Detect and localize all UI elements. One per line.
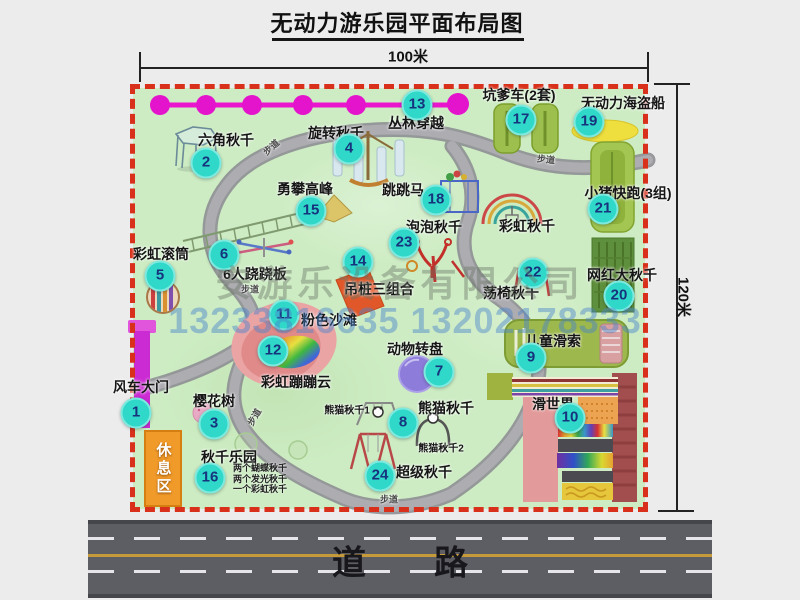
annotation-label-2: 熊猫秋千2: [418, 440, 464, 455]
watermark-phones: 13233816635 13202178333: [168, 300, 641, 342]
path-label-0: 步道: [260, 136, 282, 158]
marker-badge-24: 24: [365, 461, 396, 492]
marker-badge-19: 19: [574, 107, 605, 138]
swing-park-note-line: 两个发光秋千: [233, 474, 287, 485]
marker-label-24: 超级秋千: [396, 462, 452, 482]
marker-badge-18: 18: [421, 185, 452, 216]
marker-label-18: 跳跳马: [382, 180, 424, 200]
swing-park-note-line: 一个彩虹秋千: [233, 484, 287, 495]
path-label-4: 步道: [380, 493, 398, 506]
marker-badge-15: 15: [296, 196, 327, 227]
path-label-1: 步道: [536, 152, 555, 167]
marker-label-17: 坑爹车(2套): [482, 85, 555, 105]
marker-badge-16: 16: [195, 463, 226, 494]
swing-park-note-line: 两个蝴蝶秋千: [233, 463, 287, 474]
marker-badge-5: 5: [145, 261, 176, 292]
marker-badge-4: 4: [334, 134, 365, 165]
marker-badge-10: 10: [555, 403, 586, 434]
marker-badge-7: 7: [424, 357, 455, 388]
marker-label-8: 熊猫秋千: [418, 398, 474, 418]
marker-badge-17: 17: [506, 105, 537, 136]
marker-badge-1: 1: [121, 398, 152, 429]
marker-badge-2: 2: [191, 148, 222, 179]
annotation-label-0: 彩虹秋千: [499, 216, 555, 236]
marker-label-12: 彩虹蹦蹦云: [261, 372, 331, 392]
annotation-label-1: 熊猫秋千1: [324, 402, 370, 417]
marker-label-1: 风车大门: [113, 377, 169, 397]
marker-badge-8: 8: [388, 408, 419, 439]
path-label-3: 步道: [244, 406, 264, 428]
marker-badge-21: 21: [588, 194, 619, 225]
marker-badge-3: 3: [199, 409, 230, 440]
marker-badge-13: 13: [402, 90, 433, 121]
marker-badge-9: 9: [516, 343, 547, 374]
marker-badge-23: 23: [389, 228, 420, 259]
swing-park-notes: 两个蝴蝶秋千两个发光秋千一个彩虹秋千: [233, 463, 287, 495]
